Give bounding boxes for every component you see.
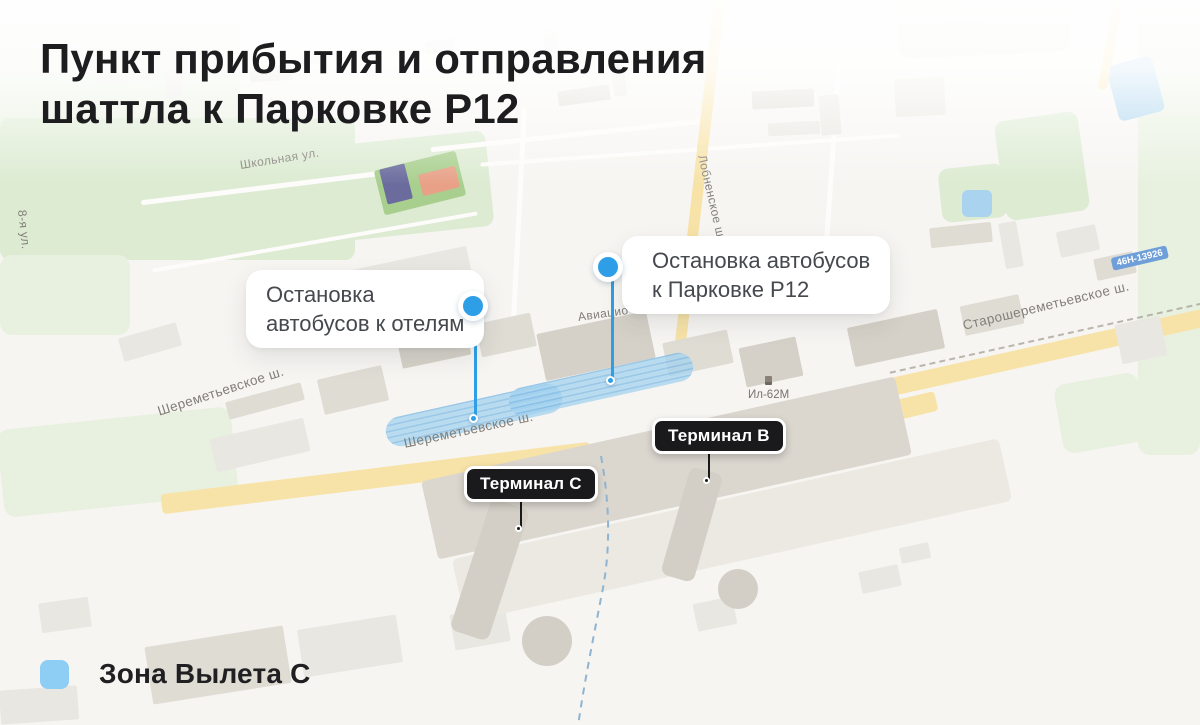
- legend-zone-label: Зона Вылета C: [99, 658, 311, 690]
- parking-stop-callout-line2: к Парковке P12: [652, 275, 870, 304]
- page-title: Пункт прибытия и отправления шаттла к Па…: [40, 34, 707, 133]
- hotels-stop-callout: Остановка автобусов к отелям: [246, 270, 484, 348]
- parking-stop-callout: Остановка автобусов к Парковке P12: [622, 236, 890, 314]
- hotels-stop-callout-line2: автобусов к отелям: [266, 309, 464, 338]
- hotels-stop-marker-dot: [458, 291, 488, 321]
- infographic: Шереметьевское ш. Шереметьевское ш. Стар…: [0, 0, 1200, 725]
- terminal-c-location-dot: [515, 525, 522, 532]
- parking-stop-callout-line1: Остановка автобусов: [652, 246, 870, 275]
- poi-label-il62m: Ил-62М: [748, 389, 789, 401]
- terminal-b-leader-line: [708, 450, 710, 480]
- terminal-c-badge: Терминал C: [464, 466, 598, 502]
- hotels-stop-callout-line1: Остановка: [266, 280, 464, 309]
- hotels-stop-location-dot: [469, 414, 478, 423]
- page-title-line2: шаттла к Парковке P12: [40, 84, 707, 134]
- parking-stop-marker-dot: [593, 252, 623, 282]
- parking-stop-location-dot: [606, 376, 615, 385]
- legend: Зона Вылета C: [40, 658, 311, 690]
- terminal-b-location-dot: [703, 477, 710, 484]
- legend-zone-swatch: [40, 660, 69, 689]
- page-title-line1: Пункт прибытия и отправления: [40, 34, 707, 84]
- monument-icon: [765, 376, 772, 385]
- parking-stop-leader-line: [611, 270, 614, 380]
- terminal-c-leader-line: [520, 498, 522, 528]
- terminal-b-badge: Терминал B: [652, 418, 786, 454]
